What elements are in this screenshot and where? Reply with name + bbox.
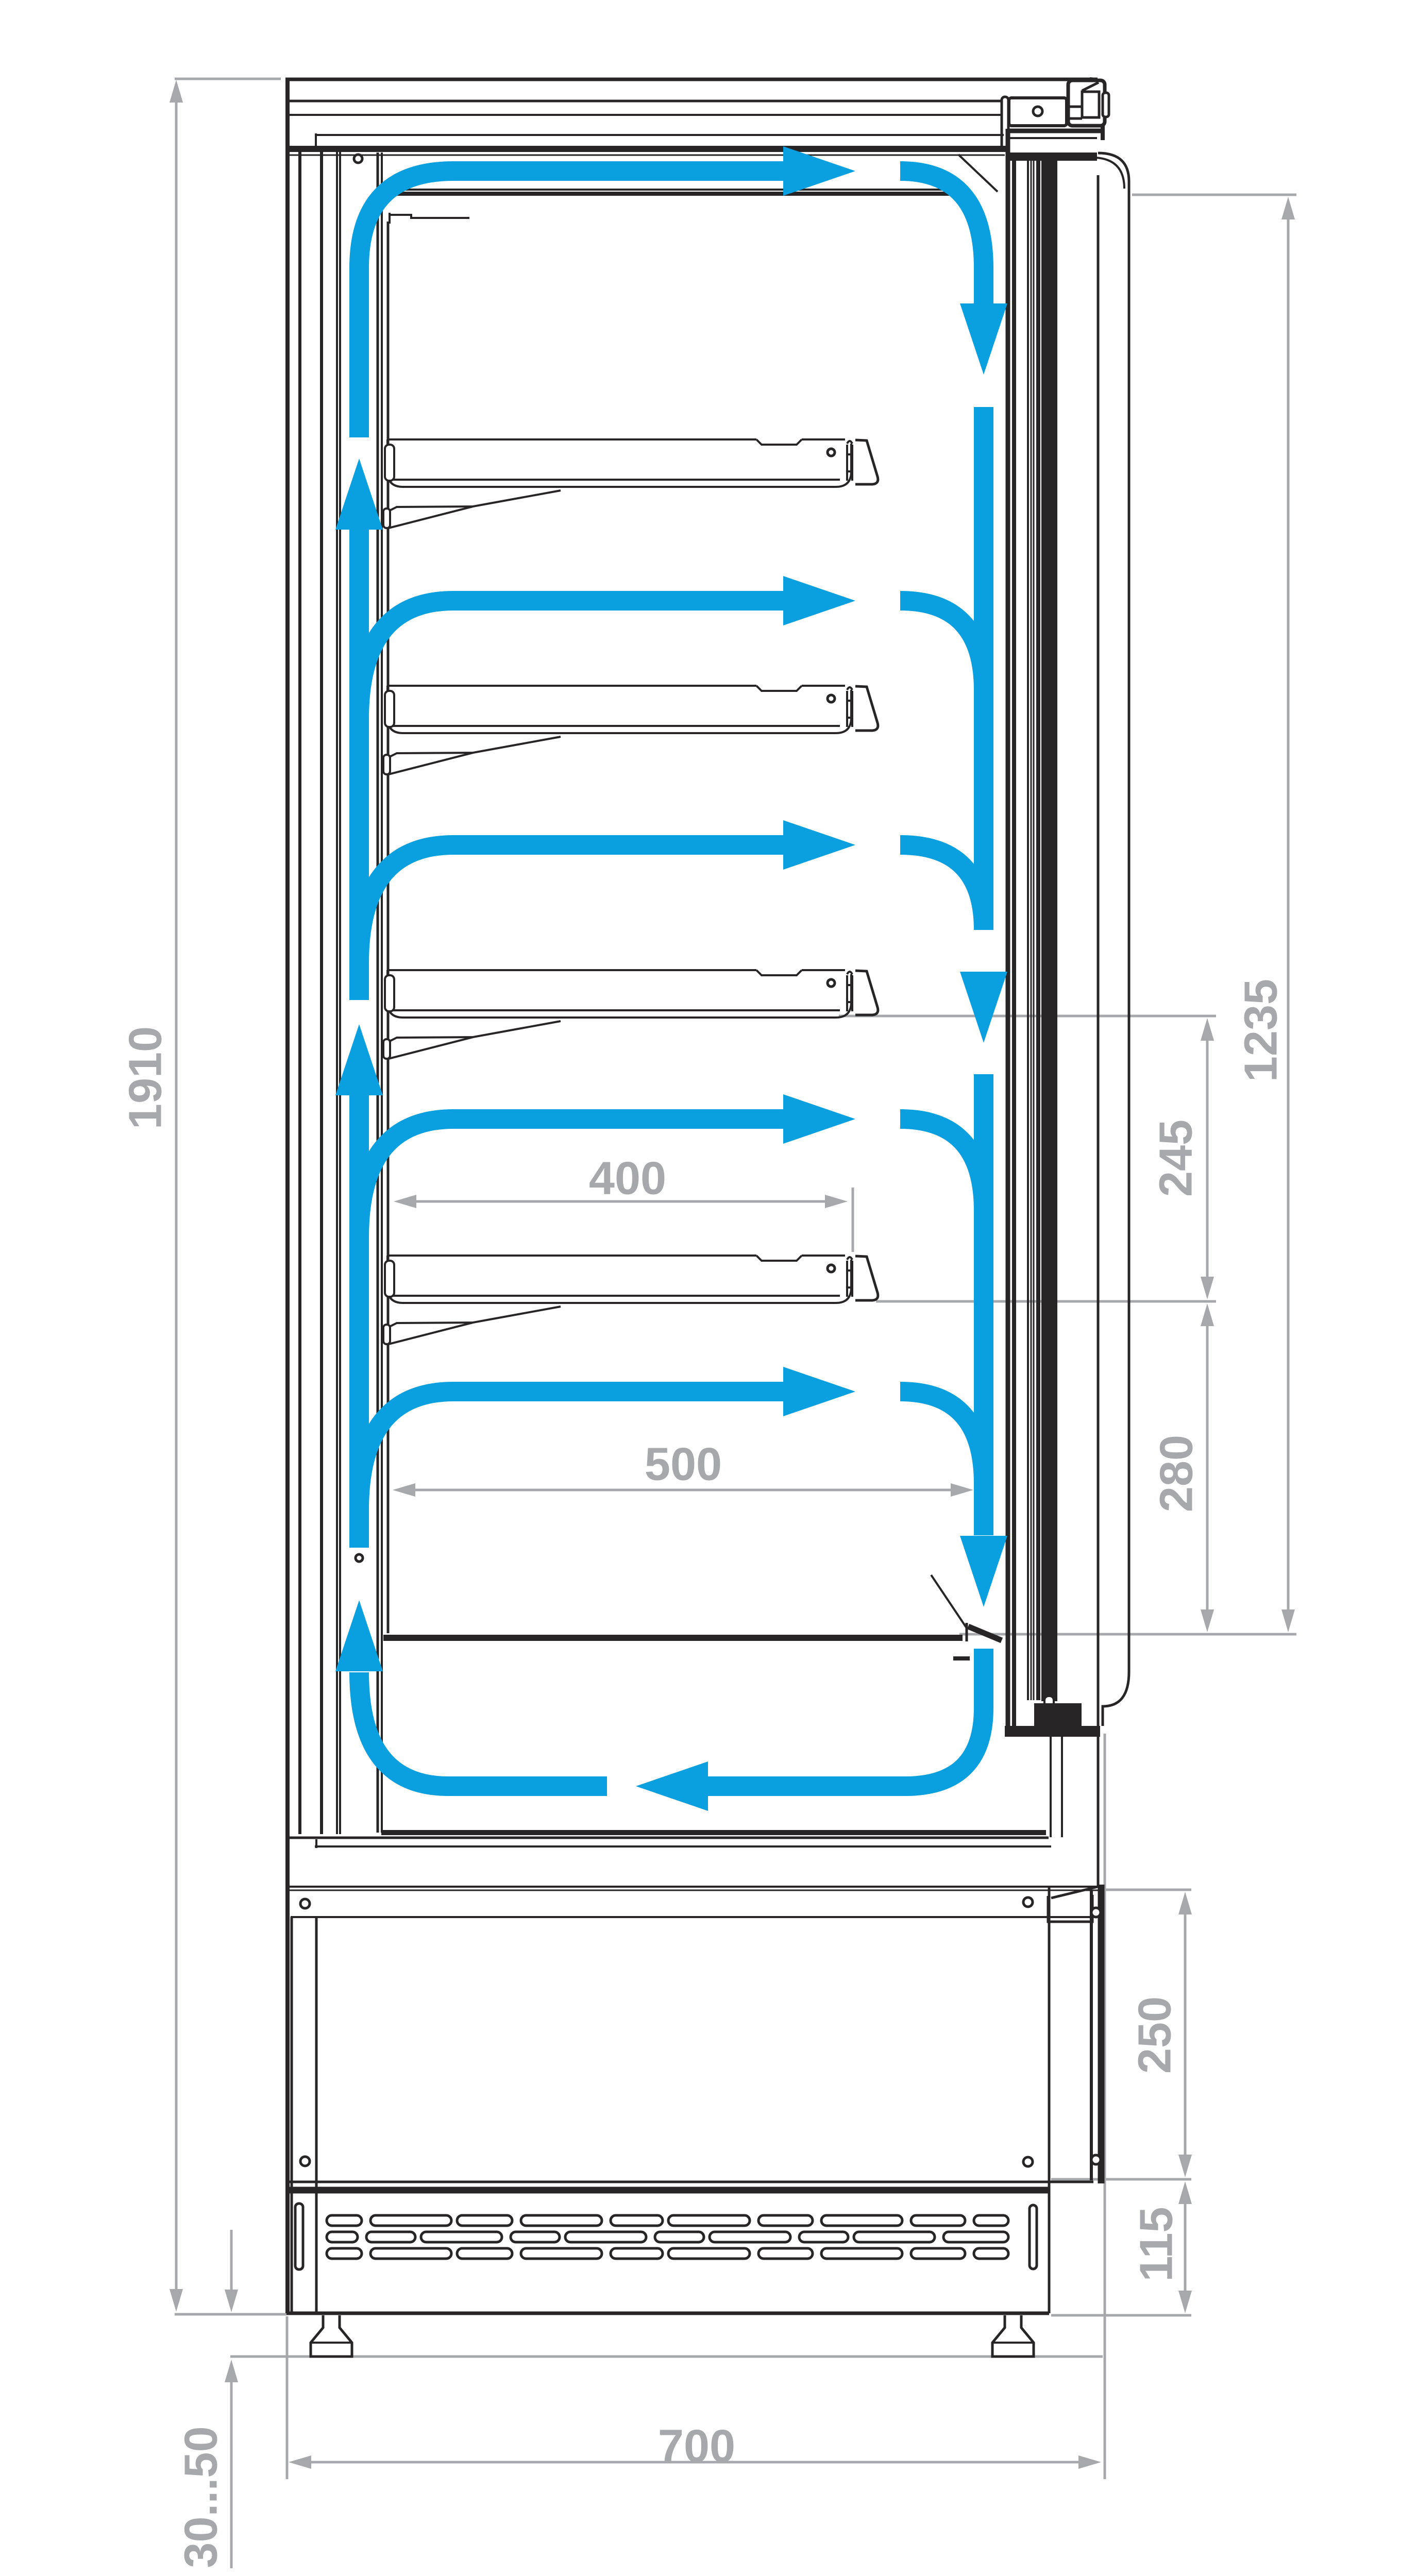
- svg-text:30...50: 30...50: [176, 2426, 227, 2568]
- svg-text:1235: 1235: [1236, 979, 1287, 1082]
- svg-text:400: 400: [589, 1153, 666, 1205]
- svg-text:115: 115: [1131, 2207, 1183, 2281]
- svg-text:700: 700: [658, 2421, 735, 2472]
- svg-text:500: 500: [645, 1439, 722, 1490]
- svg-text:1910: 1910: [120, 1026, 172, 1129]
- svg-text:280: 280: [1151, 1435, 1203, 1512]
- svg-text:250: 250: [1129, 1996, 1181, 2074]
- svg-text:245: 245: [1151, 1120, 1202, 1197]
